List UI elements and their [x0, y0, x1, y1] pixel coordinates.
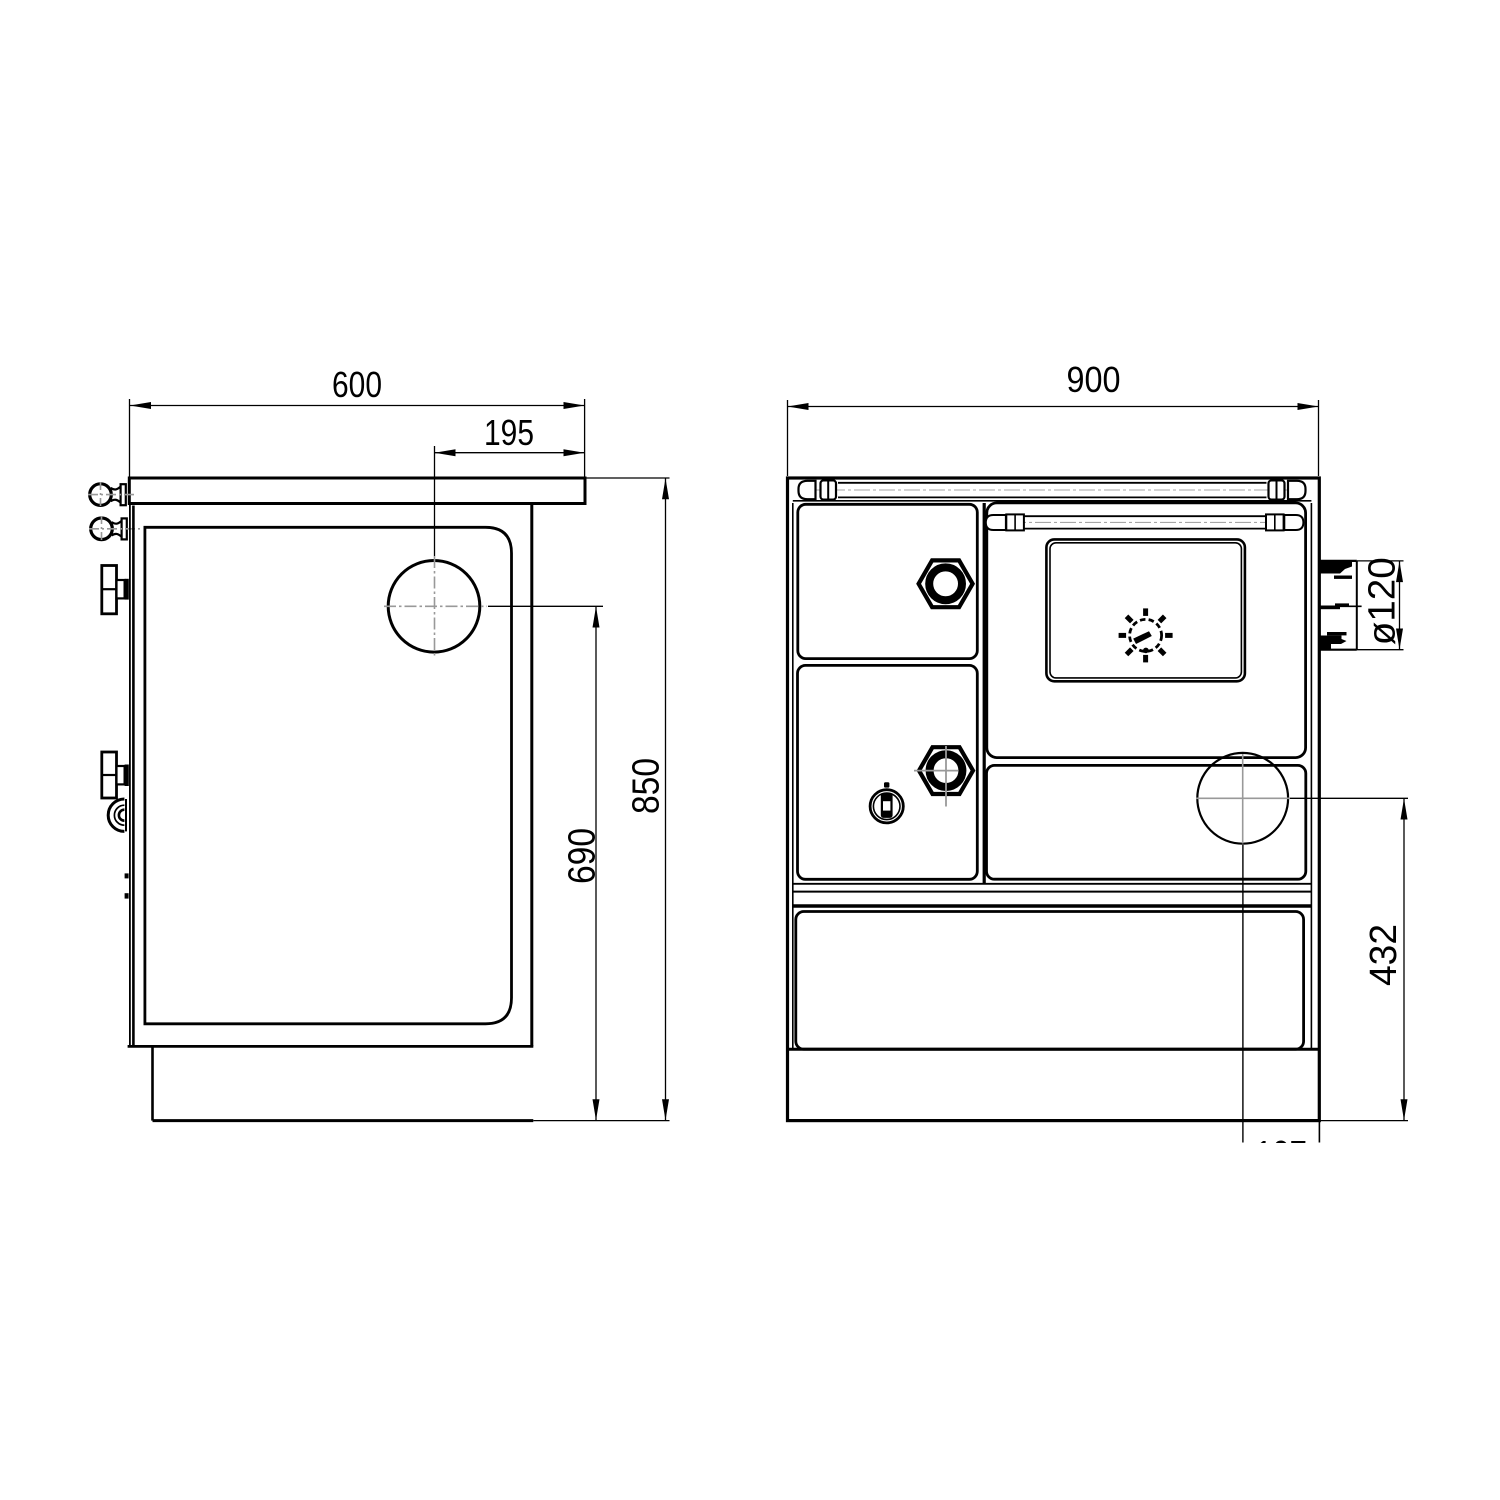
svg-text:195: 195	[484, 412, 534, 453]
svg-text:432: 432	[1363, 924, 1405, 986]
svg-text:600: 600	[332, 364, 382, 405]
svg-text:900: 900	[1067, 359, 1121, 400]
svg-text:850: 850	[625, 758, 667, 814]
svg-text:690: 690	[562, 828, 604, 884]
